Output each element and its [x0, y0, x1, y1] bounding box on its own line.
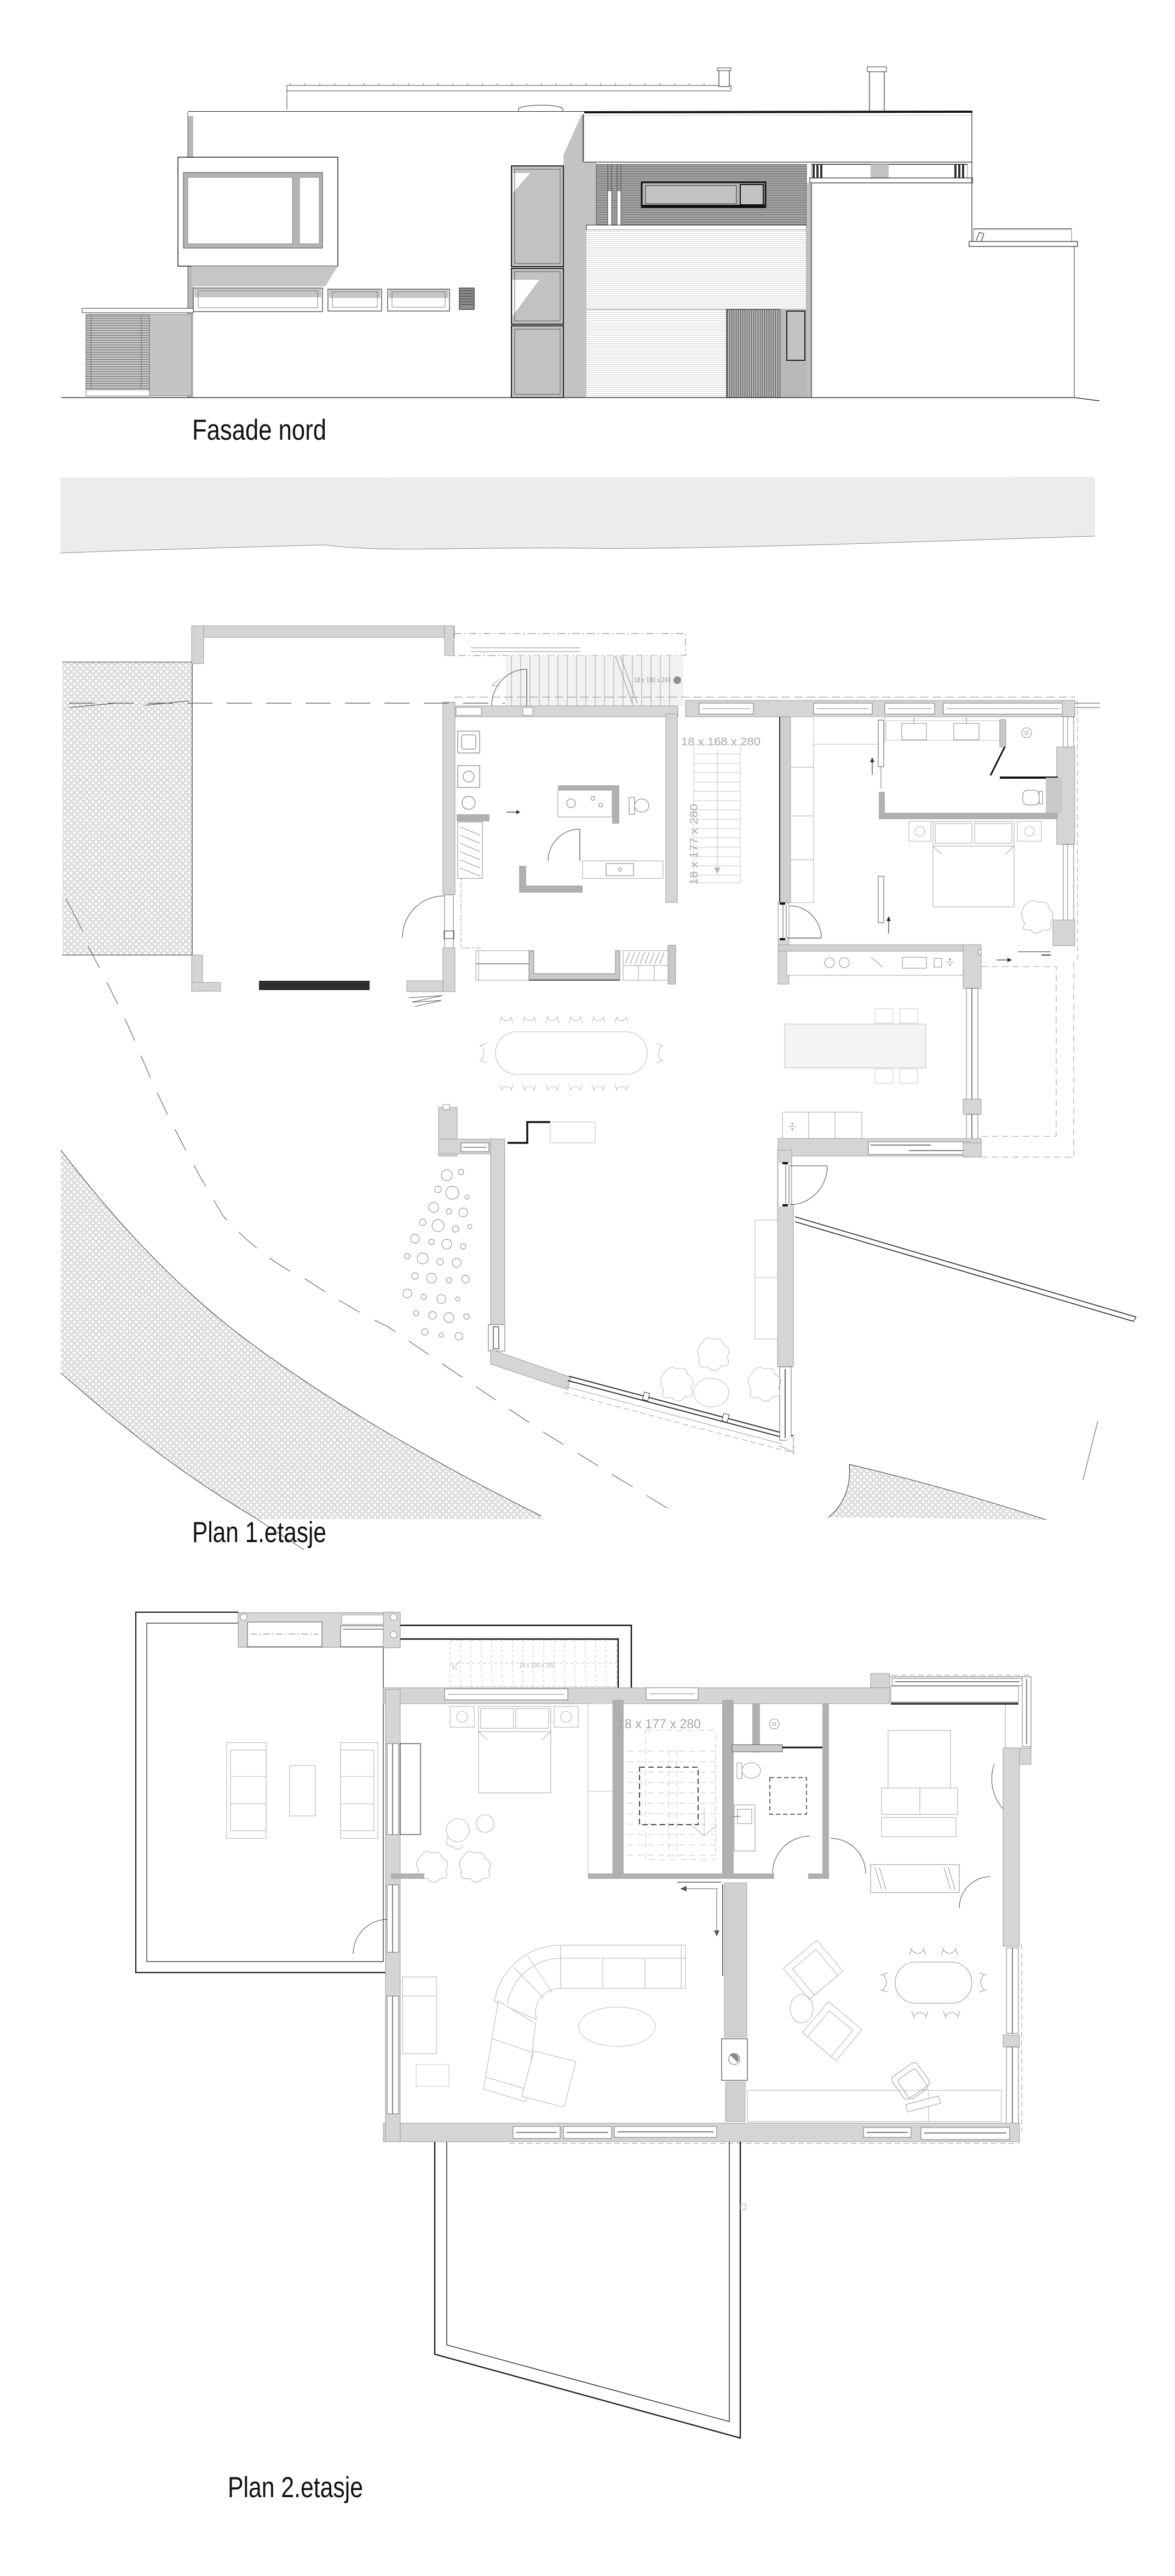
- svg-text:18 x 190 x 240: 18 x 190 x 240: [634, 676, 671, 684]
- svg-text:Plan 2.etasje: Plan 2.etasje: [228, 2471, 363, 2504]
- svg-text:18 x 190 x 240: 18 x 190 x 240: [519, 1661, 555, 1669]
- svg-text:18 x 168 x 280: 18 x 168 x 280: [681, 736, 761, 748]
- svg-text:Plan 1.etasje: Plan 1.etasje: [192, 1516, 326, 1549]
- svg-text:Fasade nord: Fasade nord: [192, 414, 326, 446]
- svg-text:18 x 177 x 280: 18 x 177 x 280: [688, 804, 700, 885]
- svg-text:18 x 177 x 280: 18 x 177 x 280: [618, 1717, 701, 1732]
